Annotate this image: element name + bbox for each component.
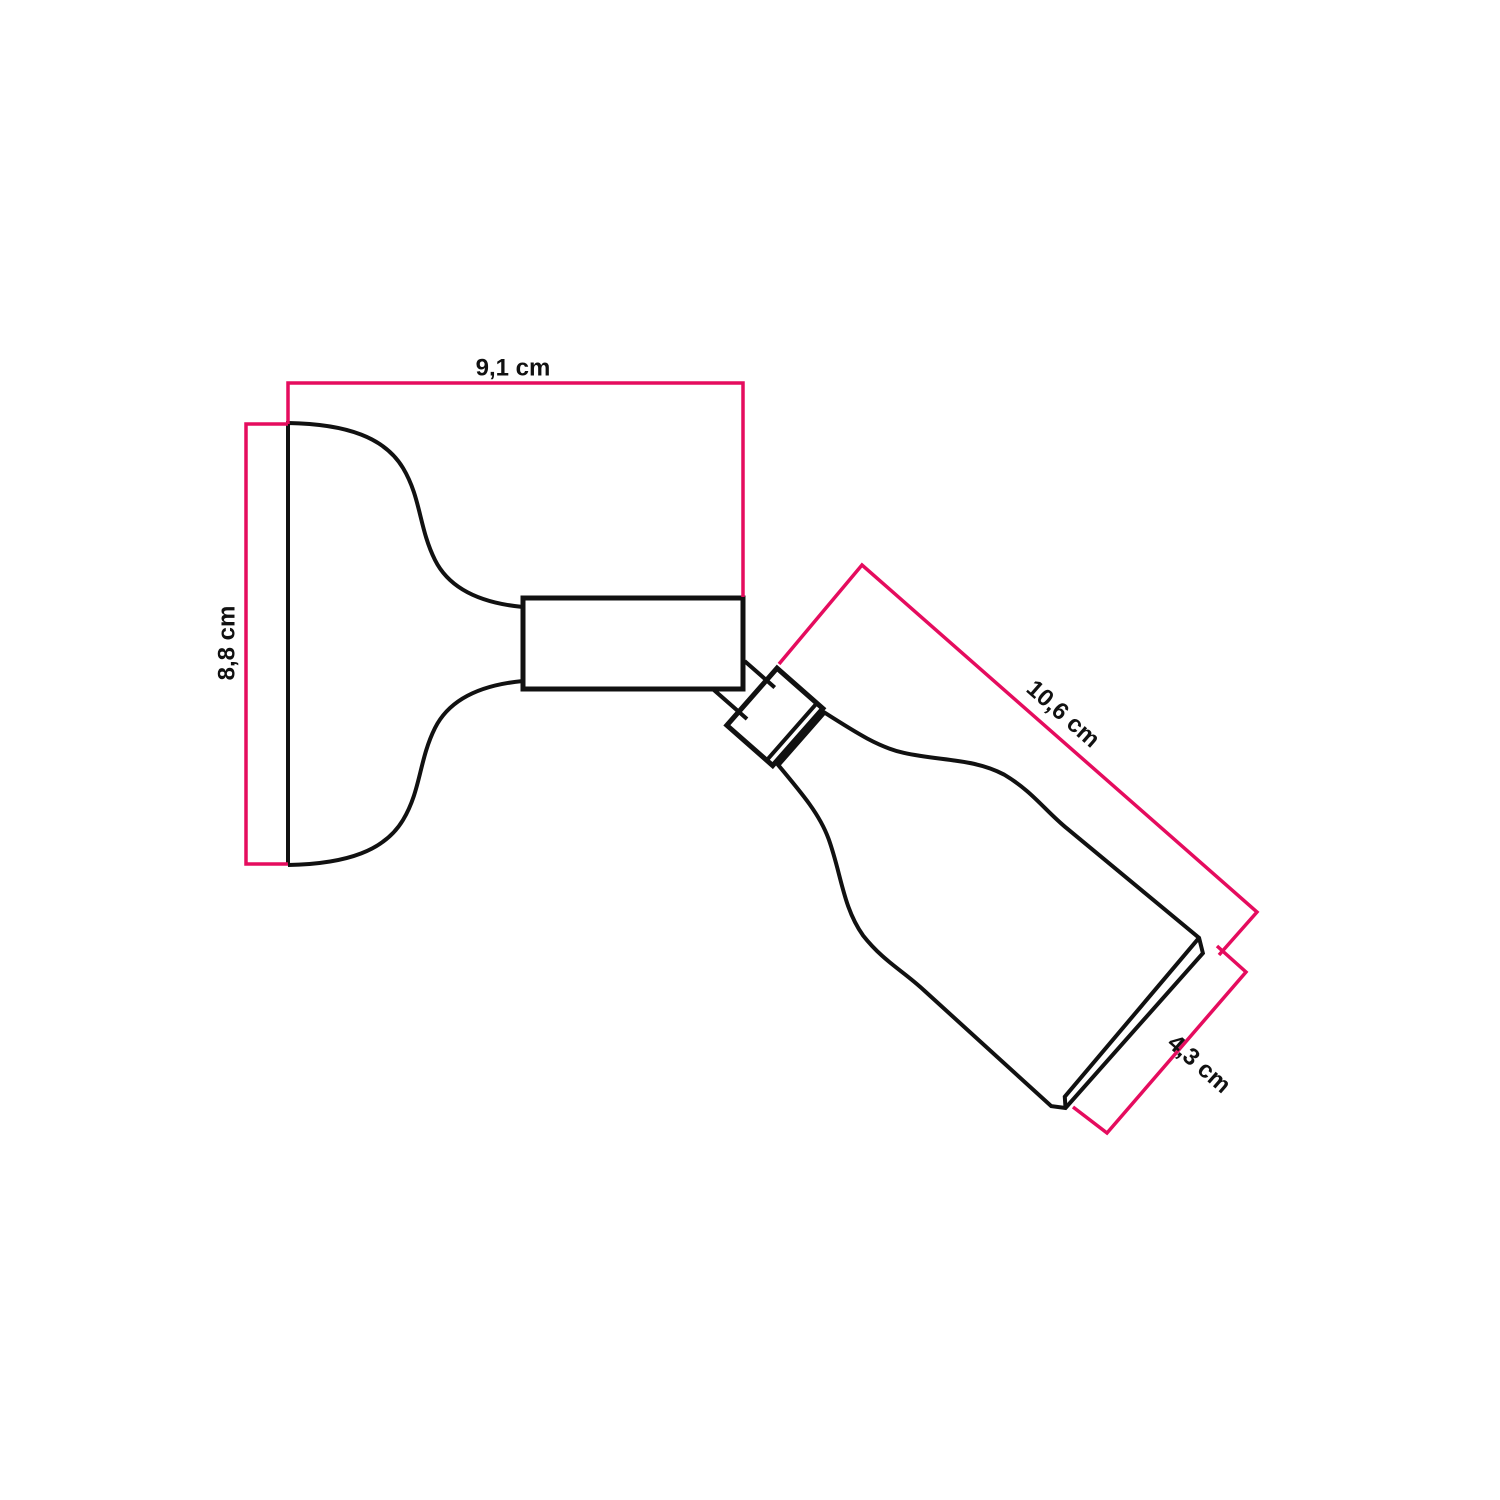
diagram-canvas: 9,1 cm 8,8 cm 10,6 cm 4,3 cm: [0, 0, 1500, 1500]
dimension-line-base-width: [288, 383, 743, 597]
dimension-label-base-width: 9,1 cm: [476, 355, 551, 382]
dimension-label-base-height: 8,8 cm: [214, 606, 241, 681]
dimension-diagram: 9,1 cm 8,8 cm 10,6 cm 4,3 cm: [0, 0, 1500, 1500]
mounting-cylinder: [523, 598, 743, 689]
adjustable-arm-group: [653, 588, 1209, 1115]
dimension-line-base-height: [246, 424, 288, 864]
dimension-line-body-diameter: [1073, 946, 1246, 1133]
dimension-lines: [246, 383, 1257, 1133]
dimension-line-body-length: [779, 565, 1257, 955]
wall-mount-base-outline: [288, 423, 523, 865]
dimension-label-body-diameter: 4,3 cm: [1162, 1029, 1236, 1099]
lamp-drawing: [288, 423, 1209, 1115]
lamp-front-rim-line: [1056, 938, 1208, 1108]
